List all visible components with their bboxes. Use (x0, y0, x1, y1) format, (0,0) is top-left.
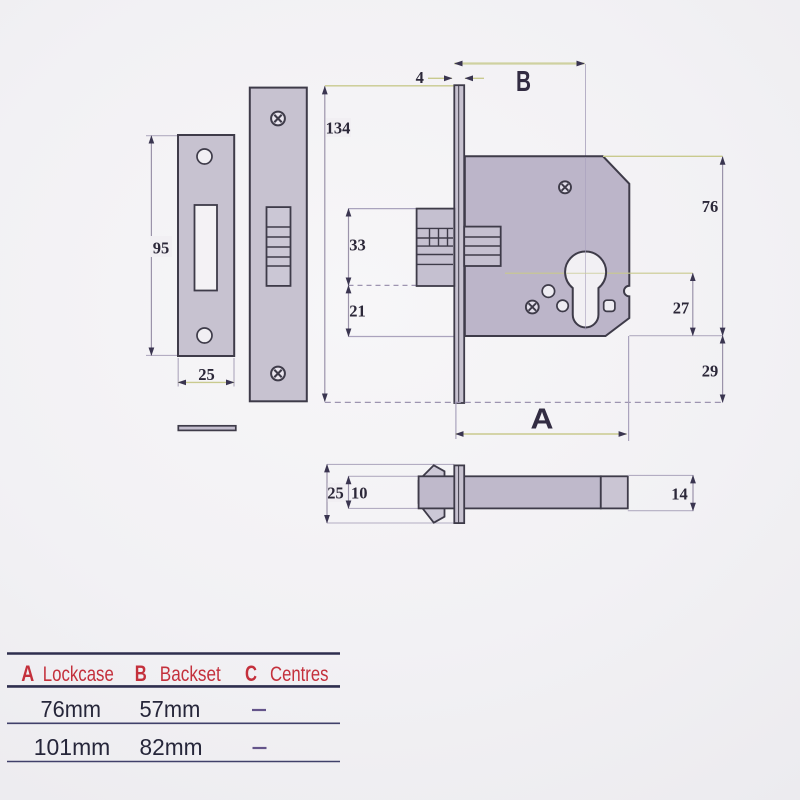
svg-text:101mm: 101mm (34, 734, 111, 760)
svg-text:82mm: 82mm (140, 734, 203, 760)
svg-text:57mm: 57mm (140, 696, 201, 722)
svg-text:A: A (21, 661, 34, 686)
svg-text:Lockcase: Lockcase (43, 663, 114, 686)
svg-text:14: 14 (671, 484, 688, 503)
svg-text:76mm: 76mm (41, 696, 102, 722)
svg-text:27: 27 (673, 299, 690, 318)
svg-text:A: A (531, 404, 554, 436)
svg-text:Centres: Centres (270, 663, 329, 686)
svg-text:134: 134 (326, 119, 351, 138)
svg-text:B: B (516, 66, 531, 98)
svg-text:4: 4 (416, 68, 424, 87)
svg-text:25: 25 (198, 365, 215, 384)
svg-text:29: 29 (702, 361, 719, 380)
svg-text:B: B (135, 661, 147, 686)
svg-text:10: 10 (351, 483, 368, 502)
svg-text:95: 95 (153, 239, 170, 258)
svg-text:Backset: Backset (160, 663, 221, 686)
svg-text:76: 76 (702, 197, 719, 216)
svg-text:33: 33 (349, 236, 366, 255)
svg-text:21: 21 (349, 302, 366, 321)
svg-text:25: 25 (327, 484, 344, 503)
svg-text:C: C (245, 661, 257, 686)
